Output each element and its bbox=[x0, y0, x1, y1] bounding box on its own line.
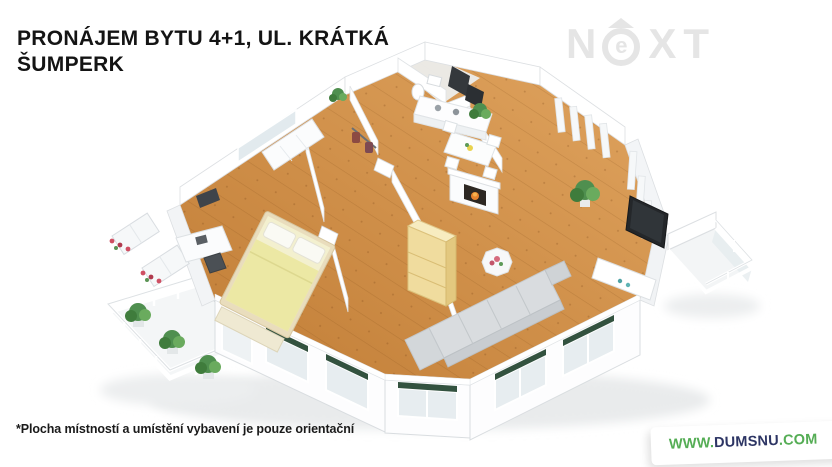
logo-letters-xt: XT bbox=[648, 25, 716, 63]
site-name: DUMSNU bbox=[714, 433, 779, 451]
page-title: PRONÁJEM BYTU 4+1, UL. KRÁTKÁ ŠUMPERK bbox=[17, 26, 389, 78]
title-line-2: ŠUMPERK bbox=[17, 52, 389, 78]
logo-letter-n: N bbox=[566, 25, 599, 63]
disclaimer-note: *Plocha místností a umístění vybavení je… bbox=[16, 422, 354, 436]
site-tld: .COM bbox=[779, 432, 818, 449]
logo-letter-e: e bbox=[615, 35, 627, 57]
site-www: WWW. bbox=[669, 435, 715, 453]
next-logo-watermark: N e XT bbox=[566, 22, 716, 66]
title-line-1: PRONÁJEM BYTU 4+1, UL. KRÁTKÁ bbox=[17, 26, 389, 52]
coffee-table bbox=[482, 248, 512, 276]
dumsnu-watermark-card: WWW.DUMSNU.COM bbox=[651, 421, 832, 466]
logo-roof-icon bbox=[608, 18, 634, 28]
balcony-right bbox=[668, 212, 752, 292]
wardrobe bbox=[408, 220, 456, 306]
logo-e-circle-icon: e bbox=[602, 28, 640, 66]
